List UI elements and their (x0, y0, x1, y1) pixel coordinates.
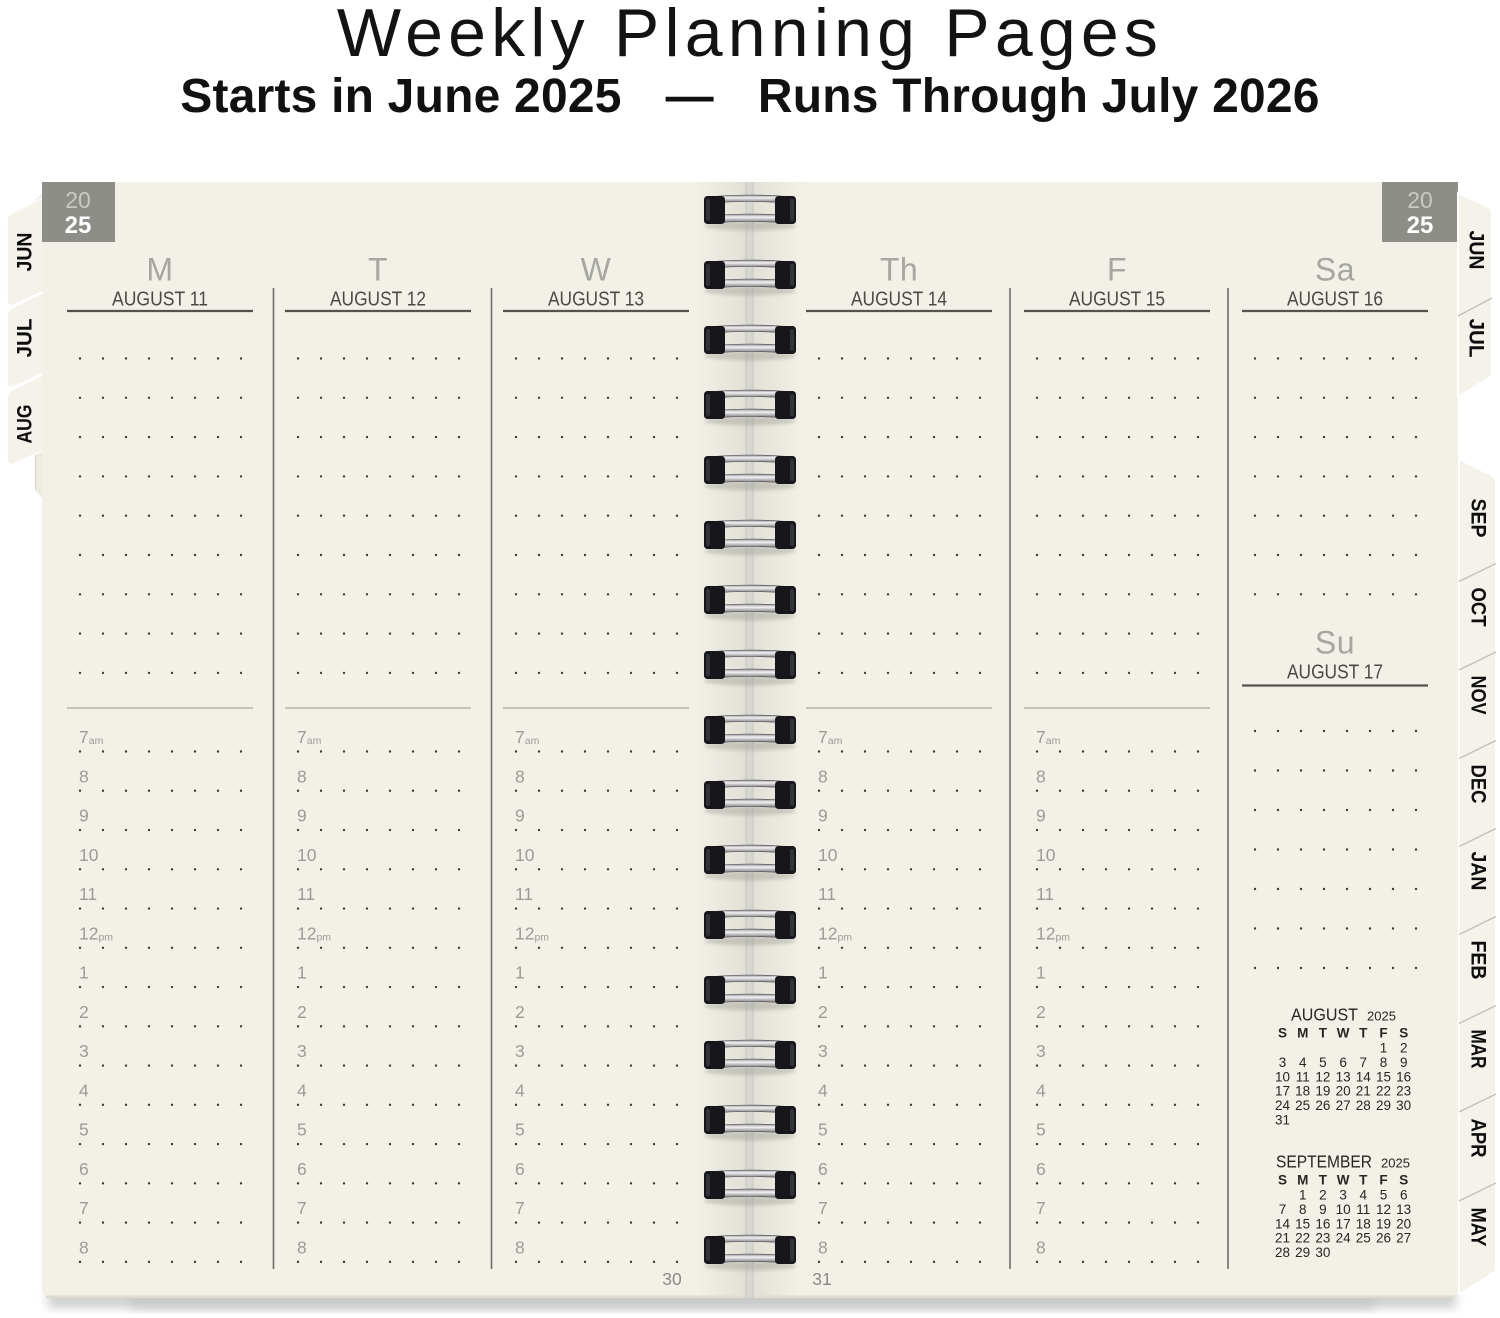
svg-text:9: 9 (818, 806, 828, 826)
svg-text:AUGUST 11: AUGUST 11 (112, 289, 208, 311)
svg-text:JUL: JUL (1465, 319, 1488, 358)
svg-text:8: 8 (297, 766, 307, 786)
svg-text:F: F (1107, 252, 1127, 288)
svg-text:2: 2 (79, 1002, 89, 1022)
svg-text:10111213141516: 10111213141516 (1275, 1069, 1411, 1084)
svg-text:W: W (581, 252, 612, 288)
svg-text:6: 6 (297, 1159, 307, 1179)
svg-text:17181920212223: 17181920212223 (1275, 1084, 1411, 1099)
svg-text:6: 6 (515, 1159, 525, 1179)
svg-text:8: 8 (1036, 1237, 1046, 1257)
svg-text:11: 11 (818, 884, 836, 904)
svg-text:JUL: JUL (14, 318, 37, 357)
svg-text:31: 31 (1275, 1113, 1290, 1128)
svg-text:T: T (368, 252, 388, 288)
svg-text:1: 1 (79, 963, 89, 983)
svg-text:5: 5 (79, 1120, 89, 1140)
svg-text:20: 20 (65, 187, 91, 213)
svg-text:2: 2 (818, 1002, 828, 1022)
svg-text:3: 3 (297, 1041, 307, 1061)
svg-text:AUGUST 12: AUGUST 12 (330, 289, 426, 311)
svg-text:7: 7 (1036, 1198, 1046, 1218)
svg-text:25: 25 (1407, 212, 1434, 239)
svg-text:3: 3 (79, 1041, 89, 1061)
svg-text:8: 8 (818, 1237, 828, 1257)
svg-text:DEC: DEC (1467, 765, 1490, 804)
svg-text:3: 3 (1036, 1041, 1046, 1061)
svg-text:1: 1 (1036, 963, 1046, 983)
svg-text:2025: 2025 (1381, 1156, 1410, 1171)
svg-text:8: 8 (818, 766, 828, 786)
svg-text:JUN: JUN (14, 233, 37, 272)
svg-text:6: 6 (79, 1159, 89, 1179)
svg-text:JUN: JUN (1465, 231, 1488, 270)
svg-text:3: 3 (515, 1041, 525, 1061)
svg-text:31: 31 (812, 1269, 831, 1289)
svg-text:11: 11 (297, 884, 315, 904)
svg-text:4: 4 (297, 1080, 307, 1100)
svg-text:2: 2 (515, 1002, 525, 1022)
svg-text:AUG: AUG (14, 405, 37, 444)
svg-text:24252627282930: 24252627282930 (1275, 1098, 1411, 1113)
svg-text:282930: 282930 (1275, 1245, 1330, 1260)
svg-text:9: 9 (1036, 806, 1046, 826)
svg-text:AUGUST 13: AUGUST 13 (548, 289, 644, 311)
svg-text:9: 9 (515, 806, 525, 826)
svg-text:MAY: MAY (1467, 1208, 1490, 1247)
svg-text:8: 8 (515, 1237, 525, 1257)
svg-text:11: 11 (79, 884, 97, 904)
svg-text:AUGUST 16: AUGUST 16 (1287, 289, 1383, 311)
svg-text:3: 3 (818, 1041, 828, 1061)
svg-text:SEPTEMBER: SEPTEMBER (1276, 1152, 1372, 1172)
svg-text:5: 5 (515, 1120, 525, 1140)
svg-text:9: 9 (297, 806, 307, 826)
svg-text:4: 4 (79, 1080, 89, 1100)
svg-text:Th: Th (880, 252, 918, 288)
svg-text:7: 7 (818, 1198, 828, 1218)
svg-text:AUGUST 15: AUGUST 15 (1069, 289, 1165, 311)
svg-text:Su: Su (1315, 625, 1355, 661)
svg-text:OCT: OCT (1467, 588, 1490, 627)
svg-text:JAN: JAN (1467, 852, 1490, 891)
svg-text:AUGUST: AUGUST (1291, 1005, 1358, 1025)
svg-text:AUGUST 14: AUGUST 14 (851, 289, 947, 311)
svg-text:SEP: SEP (1467, 499, 1490, 538)
svg-text:5: 5 (297, 1120, 307, 1140)
svg-text:10: 10 (79, 845, 99, 865)
svg-text:11: 11 (515, 884, 533, 904)
svg-text:7: 7 (515, 1198, 525, 1218)
svg-text:2: 2 (1036, 1002, 1046, 1022)
svg-text:2025: 2025 (1367, 1009, 1396, 1024)
svg-text:21222324252627: 21222324252627 (1275, 1231, 1411, 1246)
svg-text:25: 25 (65, 212, 92, 239)
svg-text:6: 6 (1036, 1159, 1046, 1179)
svg-text:7: 7 (297, 1198, 307, 1218)
svg-text:1: 1 (297, 963, 307, 983)
svg-text:10: 10 (515, 845, 535, 865)
svg-text:11: 11 (1036, 884, 1054, 904)
svg-text:8: 8 (297, 1237, 307, 1257)
svg-text:M: M (146, 252, 173, 288)
svg-text:8: 8 (515, 766, 525, 786)
svg-text:10: 10 (818, 845, 838, 865)
svg-text:5: 5 (818, 1120, 828, 1140)
svg-text:MAR: MAR (1467, 1030, 1490, 1069)
svg-text:8: 8 (1036, 766, 1046, 786)
svg-text:APR: APR (1467, 1119, 1490, 1158)
svg-text:20: 20 (1407, 187, 1433, 213)
svg-text:14151617181920: 14151617181920 (1275, 1216, 1411, 1231)
svg-text:5: 5 (1036, 1120, 1046, 1140)
svg-text:2: 2 (297, 1002, 307, 1022)
svg-text:6: 6 (818, 1159, 828, 1179)
svg-text:7: 7 (79, 1198, 89, 1218)
svg-text:NOV: NOV (1467, 676, 1490, 715)
svg-text:1: 1 (515, 963, 525, 983)
svg-text:8: 8 (79, 1237, 89, 1257)
svg-text:10: 10 (297, 845, 317, 865)
svg-text:4: 4 (515, 1080, 525, 1100)
svg-text:AUGUST 17: AUGUST 17 (1287, 662, 1383, 684)
svg-text:30: 30 (662, 1269, 682, 1289)
svg-text:10: 10 (1036, 845, 1056, 865)
svg-text:4: 4 (1036, 1080, 1046, 1100)
svg-text:1: 1 (818, 963, 828, 983)
svg-text:FEB: FEB (1467, 941, 1490, 980)
svg-text:4: 4 (818, 1080, 828, 1100)
svg-text:9: 9 (79, 806, 89, 826)
svg-text:8: 8 (79, 766, 89, 786)
svg-text:Sa: Sa (1315, 252, 1355, 288)
